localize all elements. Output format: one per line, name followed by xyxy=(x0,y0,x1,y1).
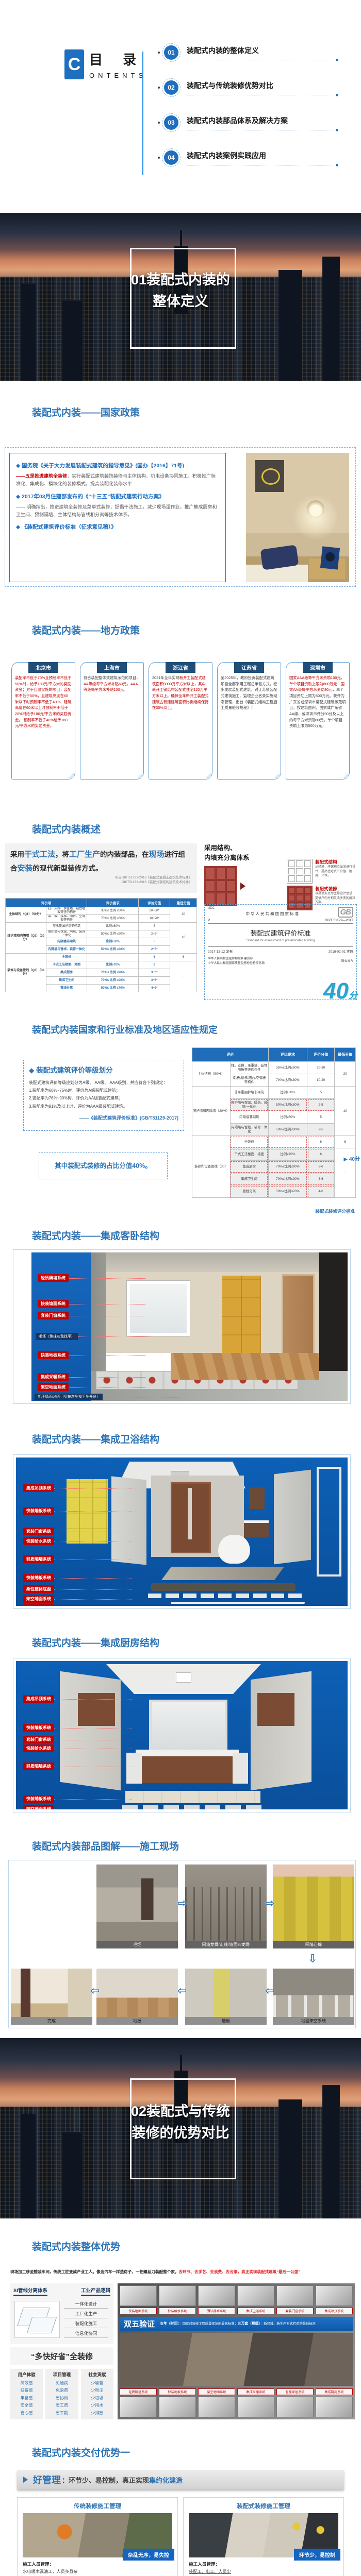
photo-raw: 毛坯 xyxy=(96,1865,178,1948)
slide-overall-advantage: 装配式内装整体优势 现场加工移至整装车间，传统工匠变成产业工人。像造汽车一样造房… xyxy=(0,2218,361,2422)
slide-title: 装配式内装——国家政策 xyxy=(32,405,140,419)
toc-number-4: 04 xyxy=(164,150,178,165)
photo-wallboard: 墙板 xyxy=(185,1969,267,2025)
system-tag: 快装地板系统 xyxy=(23,1574,54,1582)
banner-arrow-icon xyxy=(23,2477,28,2483)
system-tag: 集成吊顶系统 xyxy=(23,1695,54,1703)
card-shanghai: 上海市 符合装配整体式建筑示范的项目，AA等级每平方米补贴60元，AAA等级每平… xyxy=(80,662,144,779)
structure-label: 装配式结构 xyxy=(315,859,356,865)
system-tag: 快装地板系统 xyxy=(23,1795,54,1803)
arrow-left-icon: ⇦ xyxy=(265,1984,274,1997)
slogan: “多快好省”全装修 xyxy=(10,2347,113,2365)
bedroom-panel: 轻质隔墙系统 快装墙面系统 套装门窗系统 毛坯（免抹灰免找平） 快装地板系统 集… xyxy=(13,1249,351,1404)
toc-divider-line xyxy=(142,52,143,175)
divider-title: 02装配式与传统 装修的优势对比 xyxy=(0,2101,361,2144)
photo-studs: 隔墙龙骨/走线/墙面38龙骨 xyxy=(185,1865,267,1948)
slide-grading-standard: 装配式内装国家和行业标准及地区适应性规定 ◆ 装配式建筑评价等级划分 装配式建筑… xyxy=(0,1002,361,1221)
standard-title: 装配式建筑评价标准 xyxy=(208,928,353,938)
system-tag: 架空地面系统 xyxy=(23,1595,54,1603)
gb-standard-document: UDC GB 中华人民共和国国家标准 PGB/T 51129—2017 装配式建… xyxy=(204,904,357,1000)
toc-number-1: 01 xyxy=(164,45,178,60)
process-flow: 毛坯 隔墙龙骨/走线/墙面38龙骨 隔墙岩棉 ⇨ ⇨ ⇩ 完成 地板 xyxy=(8,1860,356,2028)
policy-highlight: ——五是推进建筑全装修 xyxy=(16,473,67,479)
kitchen-window xyxy=(149,1700,227,1752)
system-tag: 毛坯墙面/地面（免抹灰免找平免开凿） xyxy=(35,1394,103,1400)
toc-label-2: 装配式与传统装修优势对比 xyxy=(187,80,336,95)
grading-box: ◆ 装配式建筑评价等级划分 装配式建筑评价等级应划分为A级、 AA级、 AAA级… xyxy=(23,1060,184,1131)
photo-floorboard: 地板 xyxy=(96,1969,178,2025)
system-tag: 快装给水系统 xyxy=(23,1537,54,1545)
system-tag: 集成吊顶系统 xyxy=(23,1484,54,1492)
card-city: 浙江省 xyxy=(166,662,195,673)
axonometric-drawing xyxy=(14,2301,60,2338)
policy-text-panel: ◆ 国务院《关于大力发展装配式建筑的指导意见》(国办【2016】71号) ——五… xyxy=(9,453,226,582)
assembled-panel: 装配式装修施工管理 环节少，易控制 施工人员管理：装配工、电工、人员少 部品管理… xyxy=(183,2497,344,2576)
assembled-site-photo: 环节少，易控制 xyxy=(189,2513,338,2557)
slide-site-process: 装配式内装部品图解——施工现场 毛坯 隔墙龙骨/走线/墙面38龙骨 隔墙岩棉 ⇨… xyxy=(0,1816,361,2038)
yellow-cabinet xyxy=(222,1276,261,1353)
card-city: 深圳市 xyxy=(303,662,333,673)
arrow-left-icon: ⇦ xyxy=(177,1984,187,1997)
intro-line: 现场加工移至整装车间，传统工匠变成产业工人。像造汽车一样造房子，一把螺丝刀装配整… xyxy=(10,2269,357,2275)
system-tag: 毛坯（免抹灰免找平） xyxy=(36,1333,78,1340)
photo-finished: 完成 xyxy=(11,1969,92,2025)
system-tag: 套装门窗系统 xyxy=(23,1528,54,1535)
vanity xyxy=(244,1520,269,1537)
system-tag: 快装墙面系统 xyxy=(38,1300,69,1308)
slide-bathroom-system: 装配式内装——集成卫浴结构 集成吊顶系统 快装墙板系统 套 xyxy=(0,1409,361,1613)
toc-number-3: 03 xyxy=(164,115,178,130)
benefit-columns: 用户体验 高效感 获得感 丰富感 安全感 省心感 项目管理 免通病 免浪费 省协… xyxy=(10,2369,113,2419)
slide-title: 装配式内装——集成客卧结构 xyxy=(32,1228,159,1242)
table-caption: 装配式装修评分标准 xyxy=(315,1208,355,1214)
card-city: 上海市 xyxy=(97,662,127,673)
base-cabinet xyxy=(142,1756,233,1783)
toc-item-2[interactable]: 02 装配式与传统装修优势对比 xyxy=(158,78,336,97)
bedroom-render: 轻质隔墙系统 快装墙面系统 套装门窗系统 毛坯（免抹灰免找平） 快装地板系统 集… xyxy=(16,1252,348,1401)
score-40: 40分 xyxy=(323,980,357,1002)
col-user: 用户体验 高效感 获得感 丰富感 安全感 省心感 xyxy=(10,2369,43,2419)
decoration-label: 装配式装修 xyxy=(315,886,356,892)
card-city: 江苏省 xyxy=(234,662,264,673)
waterproof-chassis xyxy=(151,1583,296,1591)
policy-box: ◆ 国务院《关于大力发展装配式建筑的指导意见》(国办【2016】71号) ——五… xyxy=(5,447,356,587)
card-beijing: 北京市 装配率不低于70%且预制率不低于50%时，给予180元/平方米的奖励资金… xyxy=(11,662,75,779)
slide-local-policy: 装配式内装——地方政策 北京市 装配率不低于70%且预制率不低于50%时，给予1… xyxy=(0,601,361,801)
arrow-right-icon: ⇨ xyxy=(265,1896,274,1910)
citation-2: GB/T51232-2016《装配式钢结构建筑技术标准》 xyxy=(10,880,192,885)
toc-label-3: 装配式内装部品体系及解决方案 xyxy=(187,115,336,130)
score-marker: ▶ 40分 xyxy=(343,1155,360,1162)
policy-cards: 北京市 装配率不低于70%且预制率不低于50%时，给予180元/平方米的奖励资金… xyxy=(11,662,350,779)
system-tag: 柔性整体底盘 xyxy=(23,1585,54,1593)
bathroom-door xyxy=(171,1482,211,1553)
arrow-right-icon: ⇨ xyxy=(177,1896,187,1910)
document-page: C 目 录 ONTENTS 01 装配式内装的整体定义 02 装配式与传统装修优… xyxy=(0,0,361,2576)
evaluation-table: 评价项 评价要求 评价分值 最低分值 主体结构（Q1）（50分）柱、支撑、承重墙… xyxy=(5,898,197,992)
interior-render xyxy=(120,2333,353,2386)
col-project: 项目管理 免通病 免浪费 省协调 省工费 省工期 xyxy=(45,2369,78,2419)
toc-label-1: 装配式内装的整体定义 xyxy=(187,45,336,60)
wood-floor xyxy=(171,1353,319,1380)
floor-tiles xyxy=(125,1791,260,1803)
floor-panel xyxy=(161,1567,284,1580)
slide-delivery-1: 装配式内装交付优势一 好管理 ：环节少、易控制，真正实现 集约化建造 传统装修施… xyxy=(0,2422,361,2576)
toc-title-en: ONTENTS xyxy=(89,72,146,79)
drain-pipes xyxy=(171,1602,305,1604)
banner-management: 好管理 ：环节少、易控制，真正实现 集约化建造 xyxy=(17,2470,344,2489)
system-tag: 架空地面系统 xyxy=(23,1805,54,1809)
system-tag: 架空地面系统 xyxy=(38,1383,69,1391)
gb-logo: GB xyxy=(338,907,354,918)
photo-rockwool: 隔墙岩棉 xyxy=(273,1865,354,1948)
kitchen-panel: 集成吊顶系统 快装墙板系统 套装门窗系统 快装给水系统 轻质隔墙系统 快装地板系… xyxy=(13,1658,351,1812)
toc-title-cn: 目 录 xyxy=(89,49,146,69)
double-five-band: 双五验证 五年（时间）：国家对装修工程质量保证的最高标准；五万套（规模）：新领域… xyxy=(120,2317,353,2331)
slide-kitchen-system: 装配式内装——集成厨房结构 集成吊顶系统 快装墙板系统 套装门窗系统 快装给水 xyxy=(0,1613,361,1816)
policy-bullet-1: ◆ 国务院《关于大力发展装配式建筑的指导意见》(国办【2016】71号) xyxy=(16,462,219,469)
card-city: 北京市 xyxy=(28,662,58,673)
slide-bedroom-system: 装配式内装——集成客卧结构 轻质隔墙系统 快装墙面系统 套装门窗系统 毛坯（免抹… xyxy=(0,1221,361,1409)
arrow-down-icon: ⇩ xyxy=(308,1952,317,1965)
card-shenzhen: 深圳市 国家AAA级每平方米资助100元，单个项目资助上限为800万元；国家AA… xyxy=(286,662,350,779)
bathroom-exploded-render: 集成吊顶系统 快装墙板系统 套装门窗系统 快装给水系统 轻质隔墙系统 快装地板系… xyxy=(16,1458,348,1606)
photo-raised-floor: 地面架空系统 xyxy=(273,1969,354,2025)
hotel-room-photo xyxy=(246,453,349,582)
system-tag: 薄法排水系统 xyxy=(23,1604,54,1606)
si-title: SI管线分离体系 xyxy=(13,2286,47,2296)
bottom-system-labels: 轻质隔墙系统 快装地板系统 架空地面系统 集成采暖系统 智能家居系统 集成厨房系… xyxy=(120,2388,353,2395)
badge: 环节少，易控制 xyxy=(294,2549,340,2561)
slide-title: 装配式内装部品图解——施工现场 xyxy=(32,1839,179,1853)
policy-bullet-3: ◆ 《装配式建筑评价标准（征求意见稿）》 xyxy=(16,523,219,531)
kitchen-exploded-render: 集成吊顶系统 快装墙板系统 套装门窗系统 快装给水系统 轻质隔墙系统 快装地板系… xyxy=(16,1661,348,1809)
arrow-left-icon: ⇦ xyxy=(90,1984,100,1997)
share-note-box: 其中装配式装修的占比分值40%。 xyxy=(39,1153,168,1179)
system-tag: 快装给水系统 xyxy=(23,1744,54,1752)
insulation-panel xyxy=(67,1479,108,1544)
grading-table: 评价 评比要求 评价分值 最低分值 主体结构（50分）柱，支撑，承重墙，延性墙板… xyxy=(192,1047,356,1198)
traditional-site-photo: 杂乱无序，易失控 xyxy=(23,2513,172,2557)
wood-door xyxy=(282,1274,315,1356)
slide-national-policy: 装配式内装——国家政策 ◆ 国务院《关于大力发展装配式建筑的指导意见》(国办【2… xyxy=(0,381,361,601)
system-tag: 轻质隔墙系统 xyxy=(23,1555,54,1563)
slide-title: 装配式内装整体优势 xyxy=(32,2239,120,2253)
badge: 杂乱无序，易失控 xyxy=(123,2549,174,2561)
citation-1: 引自GB/T51231-2016《装配式混凝土建筑技术标准》 xyxy=(10,875,192,880)
col-social: 社会贡献 少噪音 少粉尘 少垃圾 少用水 少排放 xyxy=(81,2369,113,2419)
toc-number-2: 02 xyxy=(164,80,178,95)
card-jiangsu: 江苏省 至2025年，政府投资装配式建筑项目全部采用工程总承包方式。稳步发展装配… xyxy=(217,662,281,779)
logic-items: 一体化设计 工厂化生产 装配化施工 信息化协同 xyxy=(64,2299,108,2338)
system-tag: 快装地板系统 xyxy=(38,1351,69,1359)
toc-logo-block: C 目 录 ONTENTS xyxy=(64,49,146,79)
system-tag: 套装门窗系统 xyxy=(23,1736,54,1743)
toc-item-1[interactable]: 01 装配式内装的整体定义 xyxy=(158,43,336,62)
toc-slide: C 目 录 ONTENTS 01 装配式内装的整体定义 02 装配式与传统装修优… xyxy=(0,0,361,213)
top-system-labels: 快装墙面系统 快装给水系统 薄法排水系统 集成卫浴系统 套装门窗系统 集成吊顶系… xyxy=(120,2308,353,2314)
slide-title: 装配式内装国家和行业标准及地区适应性规定 xyxy=(32,1023,218,1036)
system-tag: 快装墙板系统 xyxy=(23,1724,54,1732)
transform-arrow xyxy=(240,883,245,890)
logic-title: 工业产品逻辑 xyxy=(81,2286,110,2296)
policy-bullet-2: ◆ 2017年03月住建部发布的《“十三五”装配式建筑行动方案》 xyxy=(16,493,219,500)
system-tag: 轻质隔墙系统 xyxy=(38,1274,69,1282)
window xyxy=(127,1281,190,1336)
bicycle-picture xyxy=(255,460,284,492)
structure-grid xyxy=(287,859,313,884)
slide-overview: 装配式内装概述 采用干式工法，将工厂生产的内装部品，在现场进行组合安装的现代新型… xyxy=(0,801,361,1002)
section-divider-02: 02装配式与传统 装修的优势对比 xyxy=(0,2038,361,2218)
toilet xyxy=(218,1535,250,1564)
slide-title: 装配式内装——集成卫浴结构 xyxy=(32,1432,159,1446)
raised-floor-grid xyxy=(148,1594,303,1598)
bathroom-panel: 集成吊顶系统 快装墙板系统 套装门窗系统 快装给水系统 轻质隔墙系统 快装地板系… xyxy=(13,1454,351,1609)
divider-title: 01装配式内装的 整体定义 xyxy=(0,269,361,313)
system-tag: 集成采暖系统 xyxy=(38,1373,69,1381)
card-zhejiang: 浙江省 2021年全年实现新开工装配式建筑面积8000万平方米以上，其中新开工钢… xyxy=(149,662,212,779)
si-logic-box: SI管线分离体系 工业产品逻辑 一体化设计 工厂化生产 装配化施工 信息化协同 xyxy=(10,2283,113,2344)
slide-title: 装配式内装概述 xyxy=(32,822,101,836)
definition-statement: 采用干式工法，将工厂生产的内装部品，在现场进行组合安装的现代新型装修方式。 引自… xyxy=(5,843,197,893)
toc-label-4: 装配式内装案例实践应用 xyxy=(187,150,336,165)
section-divider-01: 01装配式内装的 整体定义 xyxy=(0,213,361,381)
raised-floor-grid xyxy=(122,1805,264,1809)
slide-title: 装配式内装——地方政策 xyxy=(32,623,140,637)
contents-logo: C xyxy=(64,49,84,79)
countertop xyxy=(136,1750,239,1756)
system-tag: 快装墙板系统 xyxy=(23,1507,54,1515)
upper-cabinet-right xyxy=(257,1693,294,1726)
structure-infill-diagram: 采用结构、内填充分离体系 装配式结构 从经济、环保观点出发进行设计，提高住宅资产… xyxy=(204,843,357,1000)
system-tag: 套装门窗系统 xyxy=(38,1312,69,1319)
toc-item-4[interactable]: 04 装配式内装案例实践应用 xyxy=(158,148,336,167)
toc-item-3[interactable]: 03 装配式内装部品体系及解决方案 xyxy=(158,113,336,132)
traditional-panel: 传统装修施工管理 杂乱无序，易失控 施工人员管理：水电暖木瓦油工，人员多且杂 材… xyxy=(17,2497,178,2576)
upper-cabinet-left xyxy=(78,1693,115,1726)
slide-title: 装配式内装交付优势一 xyxy=(32,2445,130,2459)
system-tag: 轻质隔墙系统 xyxy=(23,1762,54,1770)
systems-collage: 快装墙面系统 快装给水系统 薄法排水系统 集成卫浴系统 套装门窗系统 集成吊顶系… xyxy=(118,2283,355,2419)
standard-reference: ——《装配式建筑评价标准》(GB/T51129-2017) xyxy=(29,1114,178,1121)
wall-lamp xyxy=(307,500,324,518)
infill-grid xyxy=(204,866,237,906)
slide-title: 装配式内装——集成厨房结构 xyxy=(32,1635,159,1649)
